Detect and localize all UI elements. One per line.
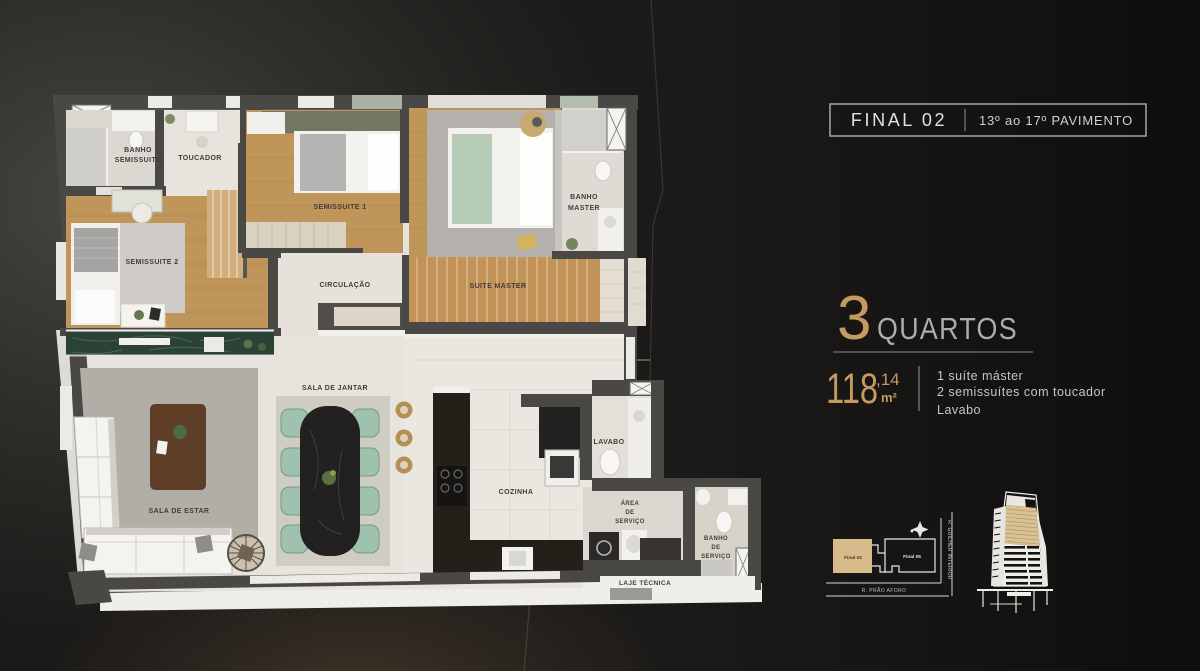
svg-text:Final 02: Final 02 — [844, 555, 862, 561]
svg-text:DE: DE — [711, 545, 720, 551]
svg-text:BANHO: BANHO — [124, 147, 152, 154]
svg-text:ÁREA: ÁREA — [621, 500, 640, 507]
svg-text:LAVABO: LAVABO — [594, 439, 625, 446]
svg-text:13º ao 17º PAVIMENTO: 13º ao 17º PAVIMENTO — [979, 113, 1133, 128]
svg-text:118: 118 — [826, 365, 878, 413]
svg-text:BANHO: BANHO — [570, 194, 598, 201]
svg-text:SEMISSUITE: SEMISSUITE — [115, 157, 161, 164]
svg-text:,14: ,14 — [876, 370, 900, 389]
svg-text:CIRCULAÇÃO: CIRCULAÇÃO — [319, 280, 370, 289]
svg-text:R. PRÃO AFORO: R. PRÃO AFORO — [862, 587, 907, 594]
svg-text:SERVIÇO: SERVIÇO — [701, 554, 731, 560]
svg-text:Lavabo: Lavabo — [937, 403, 981, 417]
svg-text:2 semissuítes com toucador: 2 semissuítes com toucador — [937, 385, 1106, 399]
svg-text:SEMISSUITE 2: SEMISSUITE 2 — [125, 259, 178, 266]
svg-text:BANHO: BANHO — [704, 536, 728, 542]
svg-text:3: 3 — [837, 284, 871, 353]
svg-text:SALA DE JANTAR: SALA DE JANTAR — [302, 385, 368, 392]
svg-text:m²: m² — [881, 390, 898, 405]
svg-text:Final 05: Final 05 — [903, 554, 921, 560]
svg-text:COZINHA: COZINHA — [499, 489, 534, 496]
svg-text:SUITE MASTER: SUITE MASTER — [470, 283, 527, 290]
svg-text:SEMISSUITE 1: SEMISSUITE 1 — [313, 204, 366, 211]
svg-text:1 suíte máster: 1 suíte máster — [937, 369, 1023, 383]
svg-text:SALA DE ESTAR: SALA DE ESTAR — [149, 508, 210, 515]
svg-text:FINAL 02: FINAL 02 — [851, 110, 947, 130]
svg-text:R. GUILHER INTERIOR: R. GUILHER INTERIOR — [946, 520, 952, 580]
svg-text:DE: DE — [625, 510, 634, 516]
svg-text:TOUCADOR: TOUCADOR — [178, 155, 222, 162]
svg-text:LAJE TÉCNICA: LAJE TÉCNICA — [619, 578, 671, 587]
svg-text:SERVIÇO: SERVIÇO — [615, 519, 645, 525]
svg-text:MASTER: MASTER — [568, 205, 600, 212]
svg-text:QUARTOS: QUARTOS — [877, 312, 1018, 346]
